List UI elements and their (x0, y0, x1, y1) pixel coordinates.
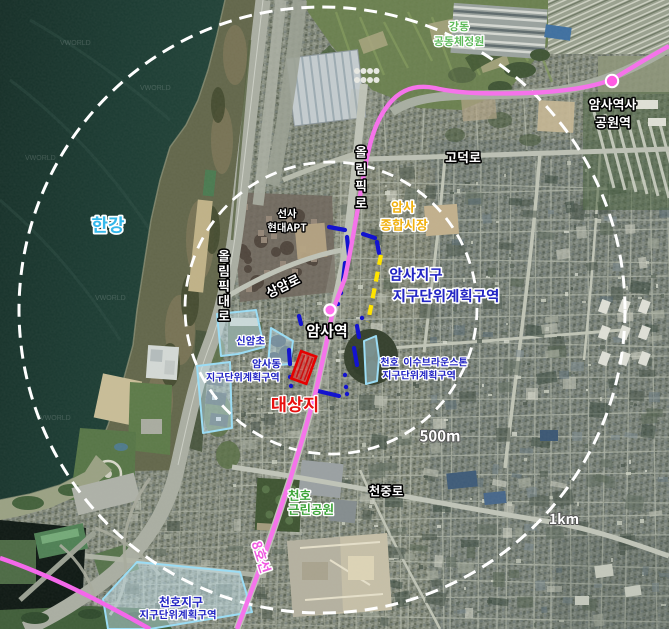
svg-text:VWORLD: VWORLD (40, 415, 71, 422)
svg-text:VWORLD: VWORLD (25, 155, 56, 162)
svg-text:VWORLD: VWORLD (95, 295, 126, 302)
svg-text:VWORLD: VWORLD (60, 40, 91, 47)
svg-text:VWORLD: VWORLD (140, 85, 171, 92)
svg-text:VWORLD: VWORLD (430, 325, 461, 332)
